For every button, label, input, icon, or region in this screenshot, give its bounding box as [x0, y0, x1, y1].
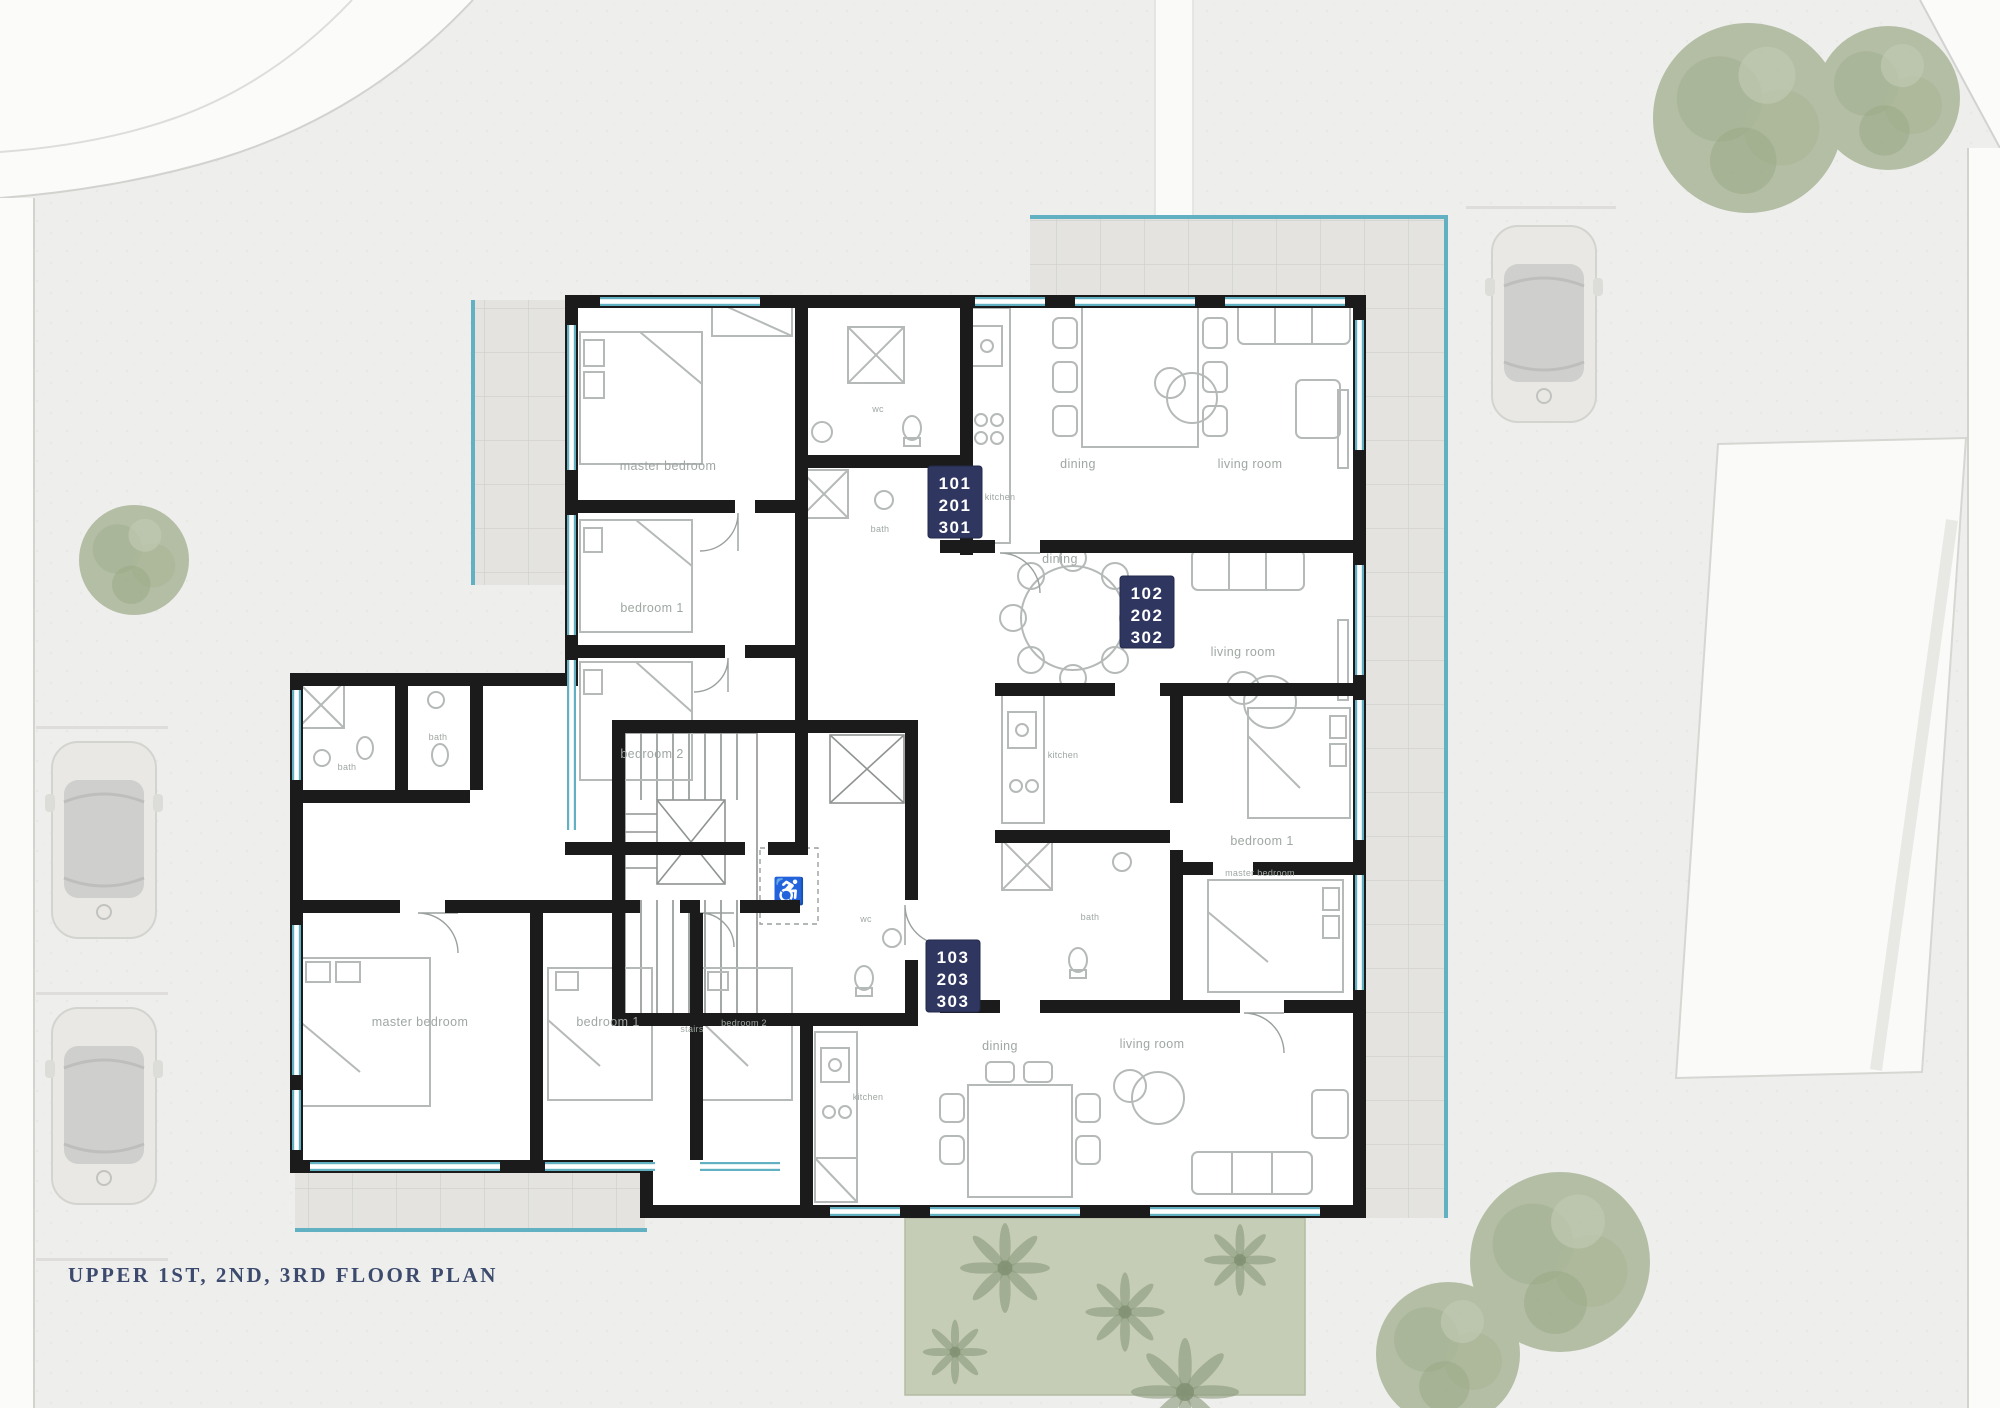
unit-1-level-3: 301	[939, 518, 972, 537]
room-label-living-1: living room	[1218, 457, 1283, 471]
room-label-living-2: living room	[1211, 645, 1276, 659]
tree-icon	[79, 505, 189, 615]
room-label-living-3: living room	[1120, 1037, 1185, 1051]
room-label-bedroom1-1: bedroom 1	[620, 601, 683, 615]
tree-icon	[1653, 23, 1843, 213]
unit-3-level-2: 203	[937, 970, 970, 989]
car-icon	[1485, 226, 1603, 422]
room-label-bedroom2-1: bedroom 2	[620, 747, 683, 761]
room-label-master-bedroom-1: master bedroom	[620, 459, 717, 473]
lawn	[905, 1218, 1305, 1408]
glass-rail	[1444, 215, 1448, 1218]
room-label-bath-1: bath	[871, 524, 890, 534]
room-label-wc-1: wc	[871, 404, 884, 414]
walkway-strip	[1155, 0, 1193, 218]
driveway-pad	[1676, 438, 1966, 1078]
room-label-bedroom2-3: bedroom 2	[721, 1018, 767, 1028]
room-label-core-wc: wc	[859, 914, 872, 924]
unit-2-level-3: 302	[1131, 628, 1164, 647]
site-plan-page: ♿	[0, 0, 2000, 1408]
room-label-kitchen-1: kitchen	[985, 492, 1016, 502]
room-label-bath-2: bath	[1081, 912, 1100, 922]
page-title: UPPER 1ST, 2ND, 3RD FLOOR PLAN	[68, 1263, 498, 1287]
floor-plan-svg: ♿	[0, 0, 2000, 1408]
unit-3-level-3: 303	[937, 992, 970, 1011]
unit-2-level-1: 102	[1131, 584, 1164, 603]
palm-icon	[960, 1223, 1050, 1313]
unit-1-badge: 101 201 301	[928, 466, 982, 538]
room-label-kitchen-3: kitchen	[853, 1092, 884, 1102]
glass-rail	[295, 1228, 647, 1232]
room-label-kitchen-2: kitchen	[1048, 750, 1079, 760]
glass-rail	[471, 300, 475, 585]
unit-1-level-1: 101	[939, 474, 972, 493]
palm-icon	[1085, 1272, 1164, 1351]
unit-2-badge: 102 202 302	[1120, 576, 1174, 648]
room-label-master-bedroom-3: master bedroom	[372, 1015, 469, 1029]
room-label-bedroom1-2: bedroom 1	[1230, 834, 1293, 848]
unit-1-level-2: 201	[939, 496, 972, 515]
room-label-bedroom1-3: bedroom 1	[576, 1015, 639, 1029]
car-icon	[45, 1008, 163, 1204]
palm-icon	[1204, 1224, 1276, 1296]
room-label-dining-1: dining	[1060, 457, 1096, 471]
glass-rail	[1030, 215, 1448, 219]
unit-3-level-1: 103	[937, 948, 970, 967]
palm-icon	[923, 1320, 988, 1385]
room-label-dining-3: dining	[982, 1039, 1018, 1053]
elevator	[830, 735, 904, 803]
room-label-stairs: stairs	[680, 1024, 704, 1034]
room-label-dining-2: dining	[1042, 552, 1078, 566]
left-road	[0, 198, 34, 1408]
tree-icon	[1816, 26, 1960, 170]
unit-3-badge: 103 203 303	[926, 940, 980, 1012]
room-label-master-bedroom-2: master bedroom	[1225, 868, 1295, 878]
room-label-bath-3a: bath	[338, 762, 357, 772]
room-label-bath-3b: bath	[429, 732, 448, 742]
unit-2-level-2: 202	[1131, 606, 1164, 625]
car-icon	[45, 742, 163, 938]
